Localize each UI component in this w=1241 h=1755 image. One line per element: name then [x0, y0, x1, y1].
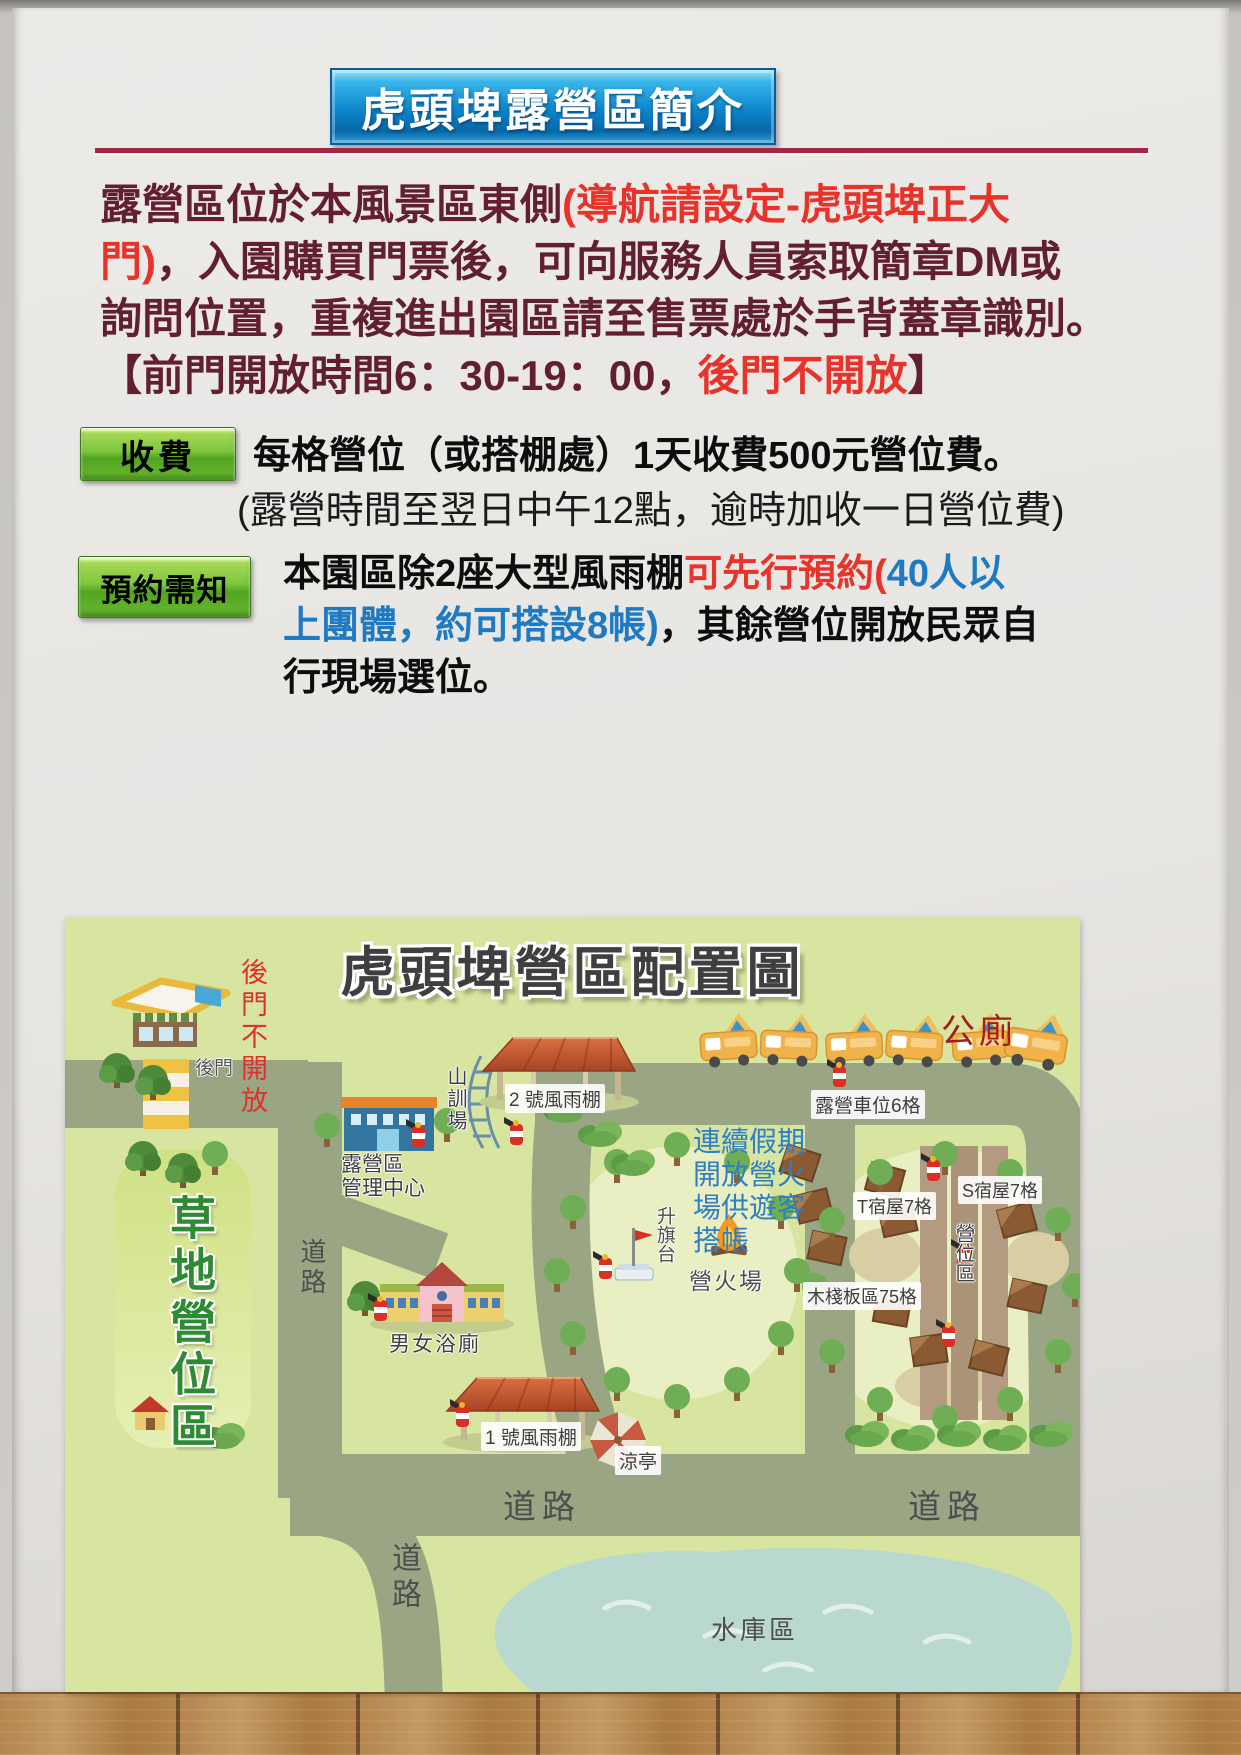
intro-line-2: 門)，入園購買門票後，可向服務人員索取簡章DM或 [100, 233, 1175, 290]
intro-text: 詢問位置，重複進出園區請至售票處於手背蓋章識別。 [100, 295, 1108, 342]
res-text: ，其餘營位開放民眾自 [659, 605, 1039, 647]
campfire-area-label: 營火場 [689, 1262, 764, 1296]
grass-area-label: 草地營位區 [157, 1194, 223, 1454]
training-ground-label: 山訓場 [441, 1066, 470, 1132]
camper-spots-label: 露營車位6格 [811, 1090, 925, 1119]
poster-page: 虎頭埤露營區簡介 露營區位於本風景區東側(導航請設定-虎頭埤正大 門)，入園購買… [0, 0, 1241, 1755]
road-label-vertical-2: 道路 [381, 1542, 425, 1614]
intro-text: 【前門開放時間6：30-19：00， [100, 352, 698, 399]
fee-badge-label: 收費 [120, 430, 196, 479]
back-gate-label: 後門 [195, 1053, 233, 1080]
fee-badge: 收費 [80, 427, 236, 481]
campfire-note-line4: 搭帳 [693, 1225, 805, 1258]
campground-map: 虎頭埤營區配置圖 後門 後門不開放 草地營位區 道路 露營區 管理中心 山訓場 … [65, 918, 1080, 1692]
res-text-blue: 40人以 [887, 553, 1005, 595]
reservoir-label: 水庫區 [711, 1610, 798, 1647]
map-title: 虎頭埤營區配置圖 [65, 928, 1080, 1007]
page-title: 虎頭埤露營區簡介 [330, 68, 776, 145]
reservation-line-1: 本園區除2座大型風雨棚可先行預約(40人以 [283, 548, 1039, 600]
fee-text-line1: 每格營位（或搭棚處）1天收費500元營位費。 [253, 424, 1022, 479]
intro-line-1: 露營區位於本風景區東側(導航請設定-虎頭埤正大 [100, 176, 1175, 233]
intro-text: 露營區位於本風景區東側 [100, 181, 562, 228]
management-center-label-line1: 露營區 [341, 1152, 425, 1176]
fee-text-line2: (露營時間至翌日中午12點，逾時加收一日營位費) [237, 479, 1065, 534]
title-divider [95, 148, 1148, 153]
road-label-bottom-right: 道路 [908, 1480, 986, 1528]
intro-text-red: (導航請設定-虎頭埤正大 [562, 181, 1010, 228]
campfire-note-line3: 場供遊客 [693, 1192, 805, 1225]
reservation-badge-label: 預約需知 [101, 565, 229, 610]
res-text: 行現場選位。 [283, 657, 511, 699]
bath-building [370, 1262, 514, 1334]
road-label-vertical-1: 道路 [293, 1238, 330, 1298]
shelter1-label: 1 號風雨棚 [481, 1422, 581, 1451]
campfire-note-line1: 連續假期 [693, 1126, 805, 1159]
road-label-bottom-left: 道路 [503, 1480, 581, 1528]
res-text: 本園區除2座大型風雨棚 [283, 553, 684, 595]
reservation-line-3: 行現場選位。 [283, 652, 1039, 704]
intro-text: ，入園購買門票後，可向服務人員索取簡章DM或 [156, 238, 1061, 285]
site-area-label: 營位區 [949, 1223, 978, 1283]
res-text-blue: 上團體，約可搭設8帳) [283, 605, 659, 647]
intro-line-4: 【前門開放時間6：30-19：00，後門不開放】 [100, 347, 1175, 404]
bath-label: 男女浴廁 [389, 1328, 481, 1358]
intro-paragraph: 露營區位於本風景區東側(導航請設定-虎頭埤正大 門)，入園購買門票後，可向服務人… [100, 176, 1175, 404]
intro-line-3: 詢問位置，重複進出園區請至售票處於手背蓋章識別。 [100, 290, 1175, 347]
intro-text-red: 門) [100, 238, 156, 285]
shelter2-label: 2 號風雨棚 [505, 1084, 605, 1113]
management-center-label-line2: 管理中心 [341, 1176, 425, 1200]
t-cabin-label: T宿屋7格 [853, 1192, 936, 1220]
pavilion-label: 涼亭 [615, 1446, 661, 1475]
wood-floor [0, 1692, 1241, 1755]
intro-text: 】 [908, 352, 950, 399]
reservation-paragraph: 本園區除2座大型風雨棚可先行預約(40人以 上團體，約可搭設8帳)，其餘營位開放… [283, 548, 1039, 704]
reservation-line-2: 上團體，約可搭設8帳)，其餘營位開放民眾自 [283, 600, 1039, 652]
flag-platform-label: 升旗台 [651, 1206, 678, 1263]
management-center-label: 露營區 管理中心 [341, 1152, 425, 1200]
back-gate-closed-label: 後門不開放 [233, 958, 272, 1118]
campfire-note: 連續假期 開放營火 場供遊客 搭帳 [693, 1126, 805, 1258]
campfire-note-line2: 開放營火 [693, 1159, 805, 1192]
page-title-text: 虎頭埤露營區簡介 [361, 74, 745, 139]
s-cabin-label: S宿屋7格 [958, 1176, 1042, 1204]
plank-area-label: 木棧板區75格 [803, 1282, 921, 1310]
public-toilet-label: 公廁 [941, 1004, 1017, 1053]
intro-text-red: 後門不開放 [698, 352, 908, 399]
res-text-red: 可先行預約( [684, 553, 887, 595]
reservation-badge: 預約需知 [78, 556, 251, 618]
